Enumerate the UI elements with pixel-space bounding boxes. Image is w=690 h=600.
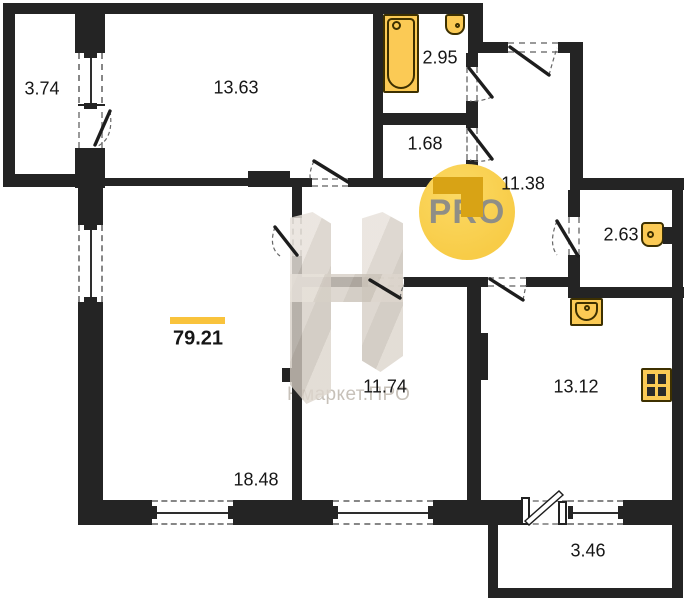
- wall-segment: [290, 178, 312, 187]
- wall-segment: [373, 14, 383, 187]
- logo-corner-bar-vertical: [461, 177, 483, 217]
- wall-segment: [292, 187, 302, 218]
- wall-segment: [75, 148, 105, 188]
- wall-segment: [3, 174, 78, 187]
- window-glass-line: [90, 53, 92, 103]
- window: [152, 500, 233, 525]
- kitchen-sink-drain: [584, 305, 590, 311]
- window: [333, 500, 433, 525]
- wall-segment: [78, 188, 103, 225]
- area-label-bathroom: 2.95: [422, 48, 457, 69]
- bathtub-basin: [387, 18, 415, 89]
- area-label-balcony-bottom: 3.46: [570, 541, 605, 562]
- window-cap: [150, 506, 157, 519]
- door-frame-post: [521, 497, 530, 525]
- watermark-letter-stem: [290, 212, 331, 404]
- area-label-bedroom: 13.63: [213, 78, 258, 99]
- wall-segment: [466, 101, 478, 128]
- wall-segment: [373, 113, 478, 125]
- door-opening: [466, 128, 478, 160]
- wall-segment: [568, 255, 580, 298]
- total-area-accent-bar: [170, 317, 225, 324]
- door-opening: [466, 67, 478, 101]
- wall-segment: [404, 277, 488, 287]
- door-opening: [312, 178, 348, 187]
- wall-segment: [433, 500, 523, 525]
- window: [568, 500, 623, 525]
- window-cap: [84, 51, 97, 58]
- toilet-drain: [647, 231, 654, 238]
- area-label-kitchen: 13.12: [553, 377, 598, 398]
- door-opening: [488, 277, 526, 287]
- total-area-label: 79.21: [173, 328, 223, 351]
- door-opening: [568, 217, 580, 255]
- wall-segment: [568, 287, 684, 298]
- watermark-letter-crossbar: [290, 274, 403, 302]
- sink-icon: [445, 14, 465, 35]
- area-label-hallway: 11.38: [501, 174, 545, 195]
- wall-segment: [233, 500, 333, 525]
- sink-drain: [455, 23, 460, 28]
- wall-segment: [78, 500, 152, 525]
- kitchen-sink-icon: [570, 298, 603, 326]
- area-label-living-room: 18.48: [233, 470, 278, 491]
- wall-pilaster: [481, 333, 488, 380]
- wall-segment: [3, 3, 15, 186]
- window: [78, 53, 103, 103]
- wall-segment: [526, 277, 573, 287]
- wall-segment: [488, 588, 683, 598]
- window-glass-line: [568, 512, 623, 514]
- area-label-balcony-top: 3.74: [24, 79, 59, 100]
- window-cap: [331, 506, 338, 519]
- window-glass-line: [152, 512, 233, 514]
- door-opening: [508, 42, 558, 53]
- wall-segment: [568, 190, 580, 217]
- wall-segment: [570, 42, 583, 178]
- door-opening: [78, 112, 103, 148]
- wall-segment: [672, 188, 683, 598]
- area-label-wc: 2.63: [603, 225, 638, 246]
- wall-segment: [623, 500, 683, 525]
- wall-segment: [248, 171, 290, 187]
- bathtub-drain: [392, 21, 401, 30]
- window-cap: [84, 223, 97, 230]
- wall-segment: [78, 302, 103, 500]
- window-cap: [428, 506, 435, 519]
- window-cap: [228, 506, 235, 519]
- window: [78, 225, 103, 302]
- window-cap: [618, 506, 625, 519]
- toilet-icon: [641, 222, 664, 247]
- window-glass-line: [90, 225, 92, 302]
- wall-segment: [466, 53, 478, 67]
- stove-icon: [641, 368, 672, 402]
- wall-segment: [570, 178, 684, 190]
- wall-segment: [75, 3, 105, 53]
- area-label-storage: 1.68: [407, 134, 442, 155]
- floor-plan: Нмаркет.ПРО: [0, 0, 690, 600]
- wall-segment: [103, 178, 248, 186]
- door-frame-post: [558, 501, 567, 525]
- stove-burners: [645, 372, 668, 398]
- wall-segment: [483, 42, 508, 53]
- wall-segment: [468, 3, 483, 53]
- area-label-middle-room: 11.74: [363, 377, 407, 398]
- window-cap: [84, 297, 97, 304]
- toilet-cistern: [663, 227, 673, 244]
- wall-segment: [467, 287, 481, 500]
- bathtub-icon: [383, 14, 419, 93]
- window-glass-line: [333, 512, 433, 514]
